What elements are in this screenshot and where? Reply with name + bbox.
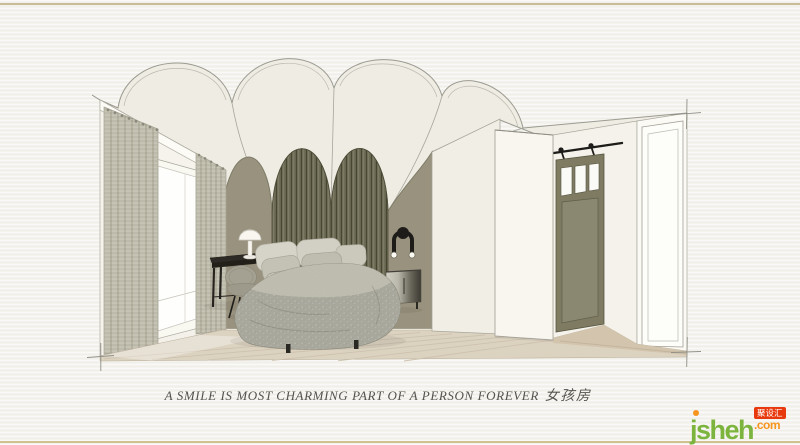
partition-wall: [432, 119, 500, 334]
jsheh-watermark-logo: jsheh 聚设汇 .com: [690, 406, 790, 440]
caption-en: A SMILE IS MOST CHARMING PART OF A PERSO…: [165, 388, 539, 403]
bed-leg: [354, 340, 359, 349]
caption-zh: 女孩房: [545, 389, 592, 404]
logo-tld-text: .com: [754, 419, 780, 432]
right-door-wall: [637, 113, 687, 353]
design-presentation-page: { "caption": { "text_en": "A SMILE IS MO…: [0, 0, 800, 444]
caption: A SMILE IS MOST CHARMING PART OF A PERSO…: [0, 385, 756, 405]
wardrobe: [495, 130, 553, 342]
bed-leg: [286, 344, 291, 353]
logo-j-dot-icon: [693, 410, 699, 416]
curtain-left: [104, 107, 158, 354]
logo-brand-text: jsheh: [690, 417, 753, 444]
bedroom-rendering: [0, 0, 800, 444]
